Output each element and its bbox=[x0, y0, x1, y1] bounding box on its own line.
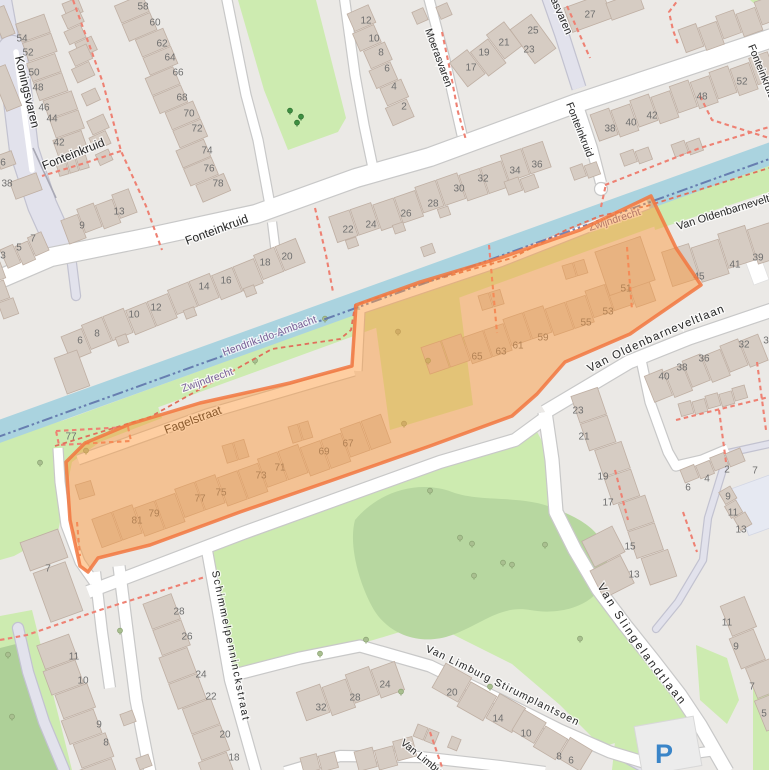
svg-text:10: 10 bbox=[128, 310, 140, 321]
svg-text:19: 19 bbox=[478, 48, 490, 59]
svg-text:52: 52 bbox=[736, 77, 748, 88]
svg-text:23: 23 bbox=[572, 406, 584, 417]
svg-text:22: 22 bbox=[342, 225, 354, 236]
svg-text:64: 64 bbox=[164, 53, 176, 64]
svg-text:P: P bbox=[655, 739, 673, 769]
svg-text:44: 44 bbox=[46, 114, 58, 125]
svg-text:18: 18 bbox=[228, 753, 240, 764]
svg-text:13: 13 bbox=[628, 570, 640, 581]
svg-text:32: 32 bbox=[315, 703, 327, 714]
svg-text:11: 11 bbox=[69, 652, 80, 663]
svg-text:76: 76 bbox=[203, 164, 215, 175]
svg-text:14: 14 bbox=[198, 282, 210, 293]
svg-text:8: 8 bbox=[103, 738, 109, 749]
svg-text:4: 4 bbox=[391, 82, 397, 93]
svg-text:34: 34 bbox=[509, 166, 521, 177]
svg-text:46: 46 bbox=[38, 103, 50, 114]
svg-text:9: 9 bbox=[733, 642, 739, 653]
svg-text:6: 6 bbox=[77, 336, 83, 347]
svg-text:28: 28 bbox=[427, 199, 439, 210]
svg-text:62: 62 bbox=[156, 39, 168, 50]
svg-text:21: 21 bbox=[498, 38, 510, 49]
svg-text:6: 6 bbox=[0, 158, 6, 169]
svg-text:42: 42 bbox=[646, 111, 658, 122]
svg-text:6: 6 bbox=[384, 64, 390, 75]
svg-text:26: 26 bbox=[400, 209, 412, 220]
svg-text:12: 12 bbox=[360, 16, 372, 27]
svg-text:26: 26 bbox=[181, 632, 193, 643]
svg-text:9: 9 bbox=[79, 221, 85, 232]
svg-text:70: 70 bbox=[183, 109, 195, 120]
svg-text:24: 24 bbox=[195, 670, 207, 681]
svg-text:18: 18 bbox=[259, 258, 271, 269]
svg-text:28: 28 bbox=[349, 693, 361, 704]
svg-text:42: 42 bbox=[53, 138, 65, 149]
svg-text:6: 6 bbox=[568, 756, 574, 767]
svg-text:14: 14 bbox=[492, 714, 504, 725]
svg-text:66: 66 bbox=[172, 68, 184, 79]
svg-text:72: 72 bbox=[191, 124, 203, 135]
svg-text:13: 13 bbox=[735, 525, 747, 536]
svg-text:27: 27 bbox=[584, 10, 596, 21]
svg-text:28: 28 bbox=[173, 607, 185, 618]
svg-text:77: 77 bbox=[65, 432, 77, 443]
svg-text:21: 21 bbox=[578, 432, 590, 443]
svg-text:3: 3 bbox=[0, 251, 6, 262]
svg-text:7: 7 bbox=[752, 466, 758, 477]
svg-text:48: 48 bbox=[696, 92, 708, 103]
svg-text:2: 2 bbox=[401, 102, 407, 113]
svg-text:6: 6 bbox=[685, 483, 691, 494]
svg-text:30: 30 bbox=[453, 184, 465, 195]
svg-text:24: 24 bbox=[379, 680, 391, 691]
svg-text:39: 39 bbox=[752, 253, 764, 264]
svg-text:7: 7 bbox=[749, 682, 755, 693]
svg-text:58: 58 bbox=[137, 2, 149, 13]
svg-text:38: 38 bbox=[1, 179, 13, 190]
svg-text:16: 16 bbox=[220, 276, 232, 287]
svg-text:10: 10 bbox=[520, 729, 532, 740]
svg-text:19: 19 bbox=[597, 472, 609, 483]
svg-text:8: 8 bbox=[378, 48, 384, 59]
svg-text:60: 60 bbox=[149, 18, 161, 29]
svg-text:8: 8 bbox=[556, 752, 562, 763]
svg-text:12: 12 bbox=[150, 303, 162, 314]
svg-text:38: 38 bbox=[604, 124, 616, 135]
svg-text:24: 24 bbox=[365, 220, 377, 231]
svg-text:20: 20 bbox=[281, 252, 293, 263]
svg-text:15: 15 bbox=[624, 542, 636, 553]
svg-text:78: 78 bbox=[212, 179, 224, 190]
svg-text:36: 36 bbox=[531, 160, 543, 171]
svg-text:11: 11 bbox=[722, 618, 733, 629]
svg-text:20: 20 bbox=[446, 688, 458, 699]
svg-text:10: 10 bbox=[77, 676, 89, 687]
svg-text:20: 20 bbox=[219, 730, 231, 741]
svg-text:5: 5 bbox=[761, 709, 767, 720]
svg-text:5: 5 bbox=[16, 243, 22, 254]
svg-text:13: 13 bbox=[113, 207, 125, 218]
svg-text:25: 25 bbox=[527, 26, 539, 37]
svg-text:40: 40 bbox=[658, 372, 670, 383]
svg-text:41: 41 bbox=[729, 260, 741, 271]
svg-text:68: 68 bbox=[176, 93, 188, 104]
svg-text:11: 11 bbox=[728, 508, 739, 519]
svg-text:32: 32 bbox=[738, 340, 750, 351]
svg-text:9: 9 bbox=[96, 720, 102, 731]
svg-text:17: 17 bbox=[602, 498, 614, 509]
svg-text:17: 17 bbox=[465, 63, 477, 74]
svg-text:74: 74 bbox=[201, 146, 213, 157]
svg-text:10: 10 bbox=[368, 34, 380, 45]
svg-text:4: 4 bbox=[704, 474, 710, 485]
svg-text:32: 32 bbox=[477, 174, 489, 185]
svg-text:7: 7 bbox=[45, 564, 51, 575]
svg-text:23: 23 bbox=[523, 45, 535, 56]
svg-text:54: 54 bbox=[16, 34, 28, 45]
svg-text:3: 3 bbox=[763, 336, 769, 347]
svg-text:9: 9 bbox=[725, 492, 731, 503]
svg-text:36: 36 bbox=[698, 354, 710, 365]
svg-text:7: 7 bbox=[30, 234, 36, 245]
svg-text:40: 40 bbox=[625, 118, 637, 129]
svg-text:22: 22 bbox=[205, 692, 217, 703]
svg-text:8: 8 bbox=[94, 329, 100, 340]
svg-text:38: 38 bbox=[676, 363, 688, 374]
svg-text:2: 2 bbox=[724, 465, 730, 476]
